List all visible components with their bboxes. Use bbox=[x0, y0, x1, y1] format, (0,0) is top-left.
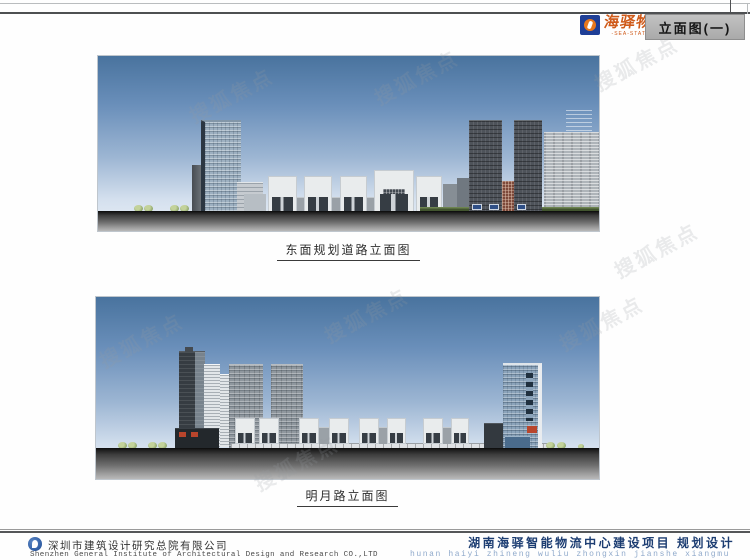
header-hairline bbox=[0, 3, 750, 4]
warehouse-module bbox=[423, 418, 443, 444]
building-dark-tower-a bbox=[469, 120, 502, 212]
building-dark-tower-b bbox=[514, 120, 542, 212]
figure-label-east: 东面规划道路立面图 bbox=[97, 241, 600, 261]
tower-podium bbox=[175, 428, 219, 449]
building-blue-glass-tower bbox=[503, 363, 542, 449]
warehouse-module-large bbox=[374, 170, 414, 212]
watermark: 搜狐焦点 bbox=[609, 215, 704, 284]
window-column bbox=[526, 373, 533, 421]
warehouse-module bbox=[304, 176, 332, 212]
sheet-title: 立面图(一) bbox=[659, 18, 732, 37]
building-lowrise bbox=[244, 194, 266, 212]
building-sliver bbox=[192, 165, 201, 212]
storefront-sign bbox=[517, 204, 526, 210]
figure-label-text: 东面规划道路立面图 bbox=[277, 241, 419, 261]
project-title-pinyin: hunan haiyi zhineng wuliu zhongxin jians… bbox=[410, 550, 730, 559]
red-sign bbox=[191, 432, 198, 437]
warehouse-connector bbox=[379, 427, 387, 444]
warehouse-module bbox=[387, 418, 406, 444]
sheet-title-box: 立面图(一) bbox=[645, 14, 745, 40]
warehouse-module bbox=[299, 418, 319, 444]
elevation-figure-mingyue bbox=[95, 296, 600, 480]
building-residential-cluster bbox=[544, 132, 600, 212]
road-ground bbox=[98, 211, 599, 231]
building-lattice bbox=[502, 181, 514, 212]
drawing-sheet: 海驿物流 -SEA-STATION- 立面图(一) bbox=[0, 0, 750, 560]
warehouse-module bbox=[359, 418, 379, 444]
warehouse-module bbox=[329, 418, 349, 444]
company-name-en: Shenzhen General Institute of Architectu… bbox=[30, 551, 378, 559]
warehouse-connector bbox=[332, 197, 340, 212]
header-divider-tick bbox=[730, 0, 731, 14]
footer-rule bbox=[0, 531, 750, 533]
figure-label-mingyue: 明月路立面图 bbox=[95, 487, 600, 507]
project-title-cn: 湖南海驿智能物流中心建设项目 规划设计 bbox=[468, 534, 735, 551]
warehouse-module bbox=[340, 176, 367, 212]
sheet-edge-tick bbox=[747, 3, 748, 14]
warehouse-connector bbox=[297, 197, 304, 212]
building-glass-tower bbox=[201, 120, 241, 212]
warehouse-module bbox=[235, 418, 255, 444]
red-sign bbox=[527, 426, 537, 433]
sea-station-logo-icon bbox=[580, 15, 600, 35]
warehouse-connector bbox=[443, 427, 451, 444]
red-sign bbox=[179, 432, 186, 437]
warehouse-module bbox=[451, 418, 469, 444]
warehouse-module bbox=[259, 418, 279, 444]
warehouse-connector bbox=[319, 427, 329, 444]
storefront-sign bbox=[489, 204, 499, 210]
facade-grille bbox=[383, 189, 406, 211]
road-ground bbox=[96, 448, 599, 479]
storefront-sign bbox=[472, 204, 482, 210]
footer-hairline bbox=[0, 529, 750, 530]
roof-structure bbox=[185, 347, 193, 352]
warehouse-connector bbox=[367, 197, 374, 212]
figure-label-text: 明月路立面图 bbox=[297, 487, 397, 507]
institute-logo-icon bbox=[28, 537, 42, 551]
warehouse-module bbox=[268, 176, 297, 212]
elevation-figure-east bbox=[97, 55, 600, 232]
